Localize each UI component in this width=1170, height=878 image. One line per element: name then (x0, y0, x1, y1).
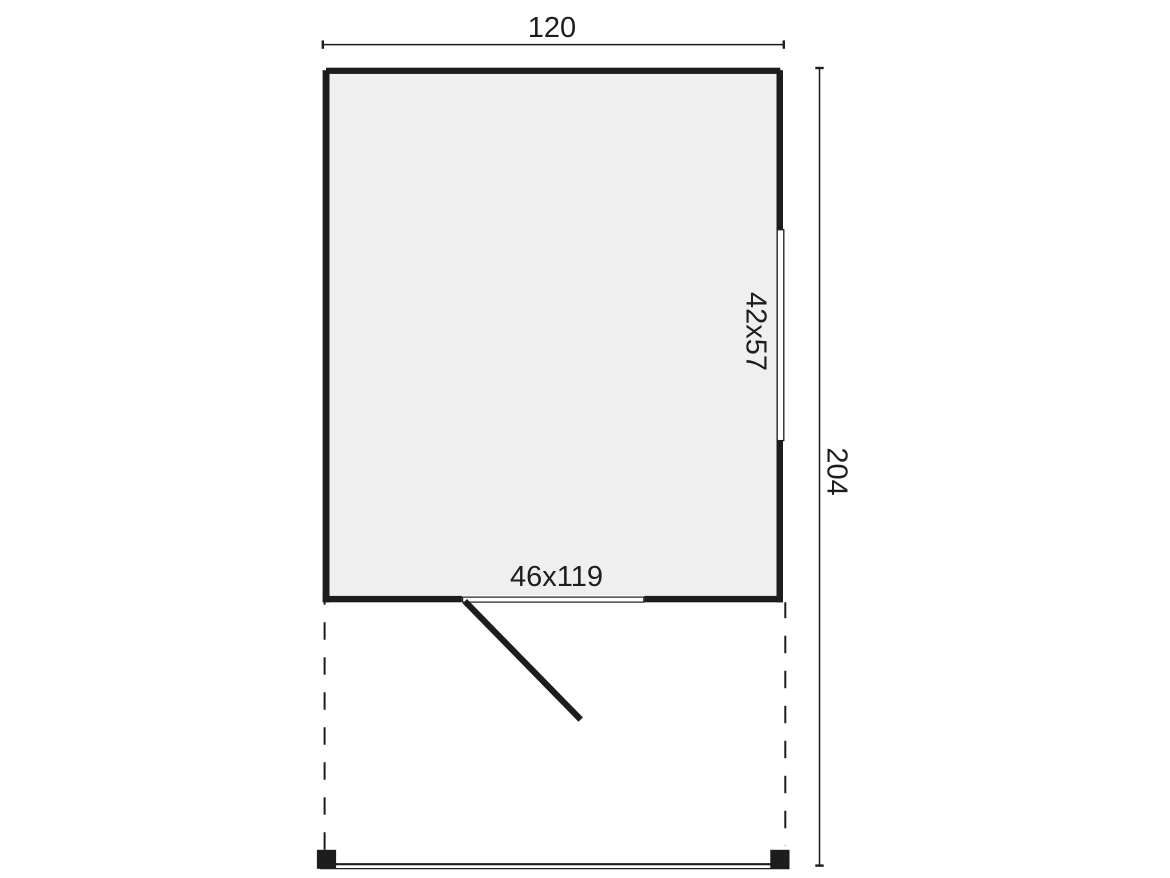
svg-text:46x119: 46x119 (510, 561, 603, 593)
svg-text:204: 204 (821, 447, 853, 495)
svg-text:120: 120 (528, 12, 576, 44)
svg-text:42x57: 42x57 (740, 292, 772, 371)
